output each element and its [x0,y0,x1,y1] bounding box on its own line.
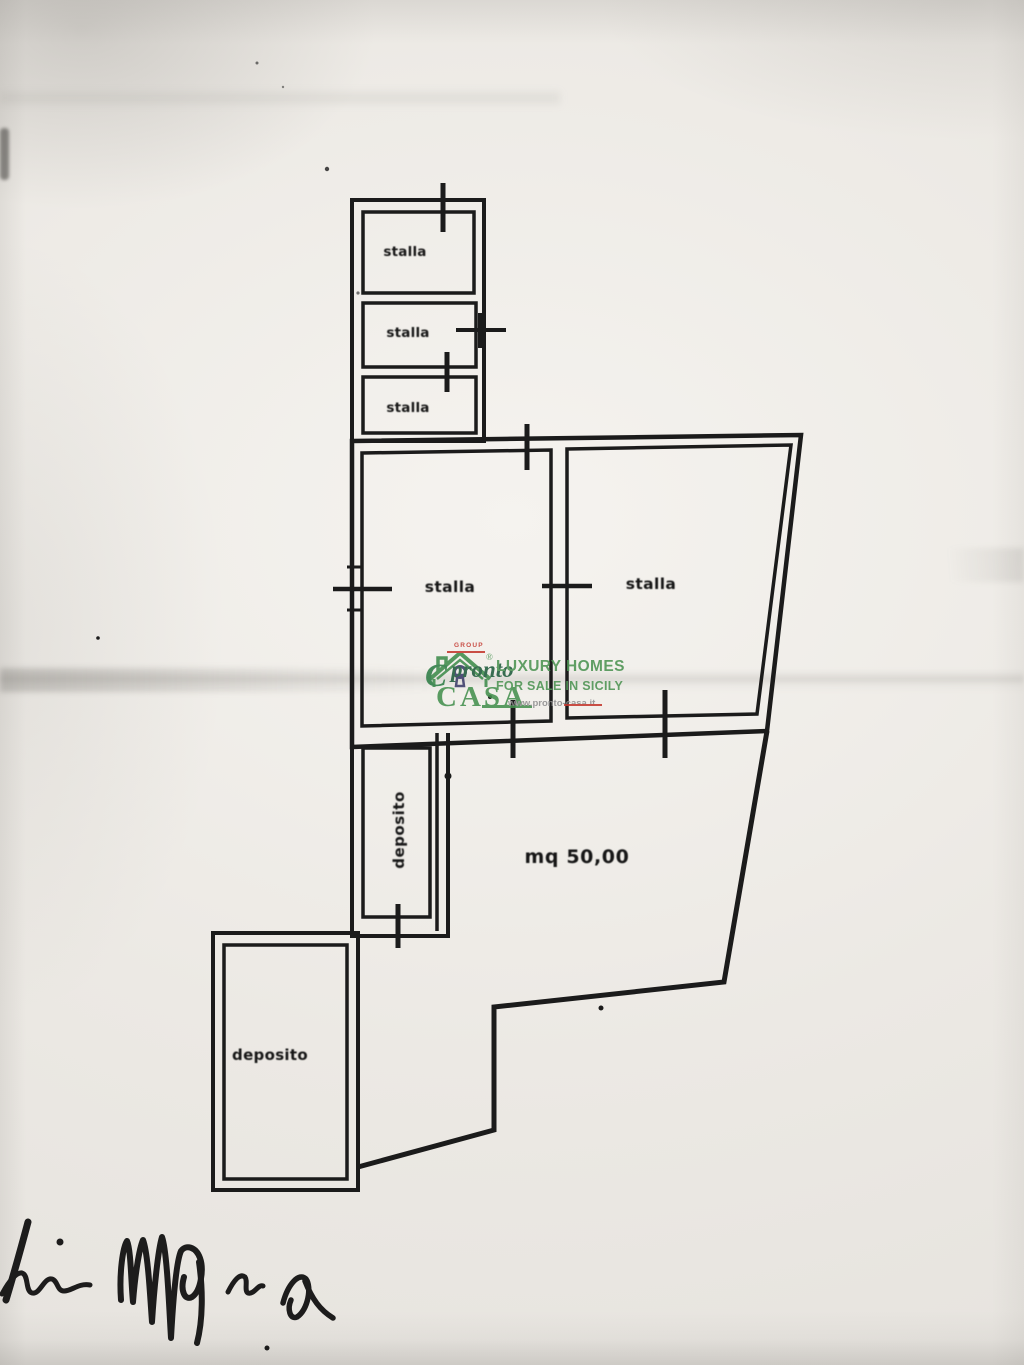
label-area-size: mq 50,00 [525,846,630,868]
logo-tagline-2: FOR SALE IN SICILY [496,679,623,693]
label-stalla-2: stalla [386,325,429,341]
scanned-floorplan-page: stalla stalla stalla stalla stalla depos… [0,0,1024,1365]
logo-group-underline [447,651,485,653]
label-stalla-1: stalla [383,244,426,260]
label-deposito-upper: deposito [390,791,408,869]
label-deposito-lower: deposito [232,1046,308,1064]
label-stalla-main-right: stalla [626,575,677,593]
boundary-open-area [358,731,767,1167]
label-stalla-main-left: stalla [425,578,476,596]
logo-tagline-1: LUXURY HOMES [496,658,625,676]
handwritten-signature [2,1222,333,1351]
logo-red-underline [564,704,602,706]
agency-watermark: GROUP ® C pronto CASA LUXURY HOMES FOR S… [424,641,639,721]
logo-group-label: GROUP [454,642,484,649]
door-window-ticks [333,183,665,948]
label-stalla-3: stalla [386,400,429,416]
